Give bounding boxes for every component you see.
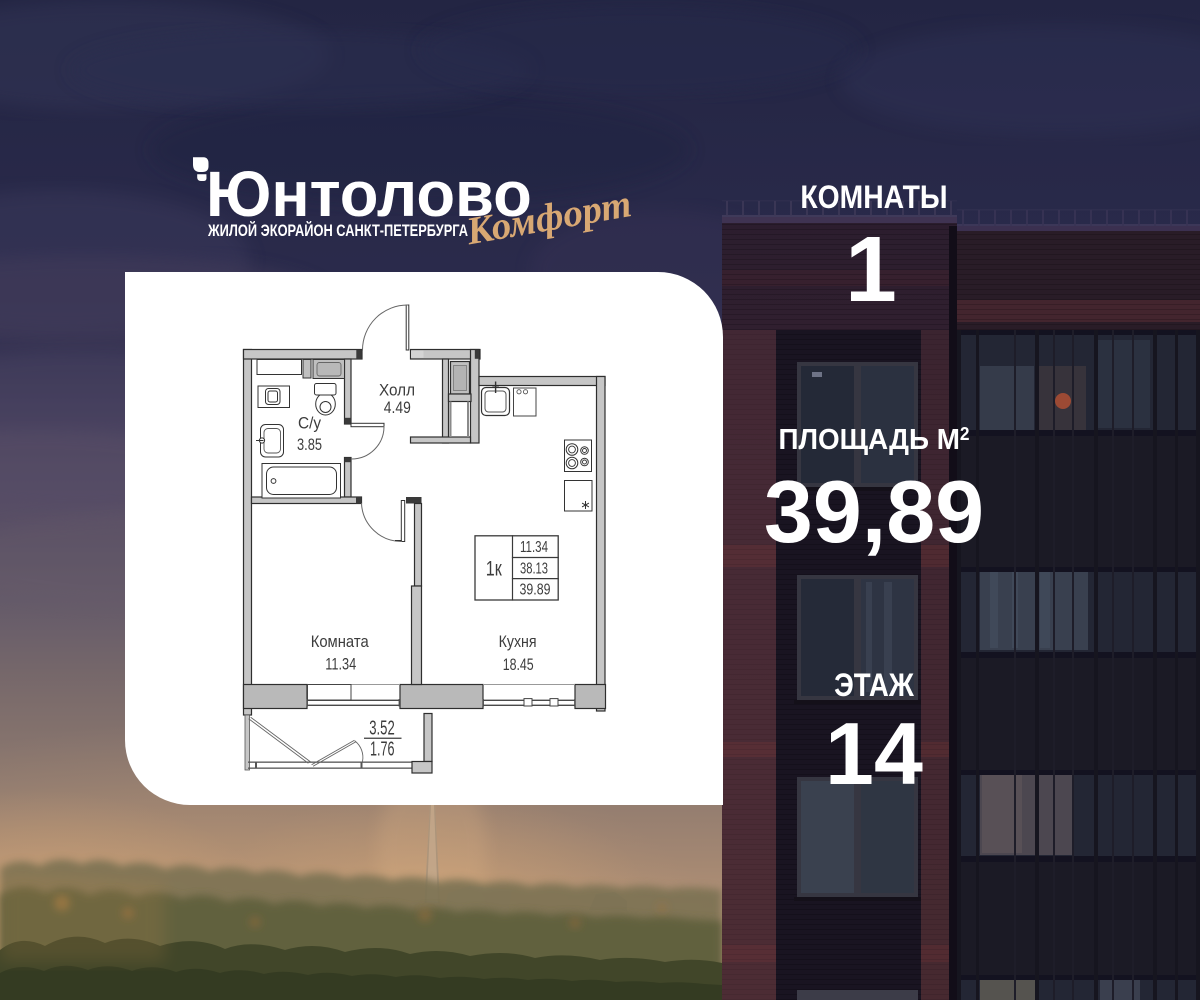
svg-text:3.52: 3.52 xyxy=(369,718,395,740)
svg-text:11.34: 11.34 xyxy=(520,539,548,556)
svg-text:18.45: 18.45 xyxy=(503,655,534,674)
svg-text:Комната: Комната xyxy=(311,632,370,651)
svg-text:3.85: 3.85 xyxy=(297,435,322,454)
svg-text:Холл: Холл xyxy=(379,380,415,399)
svg-text:38.13: 38.13 xyxy=(520,560,548,577)
svg-text:Кухня: Кухня xyxy=(499,632,537,651)
svg-text:С/у: С/у xyxy=(298,414,322,433)
svg-text:1.76: 1.76 xyxy=(370,739,395,761)
svg-text:39.89: 39.89 xyxy=(520,581,551,598)
svg-text:4.49: 4.49 xyxy=(384,398,411,417)
svg-text:11.34: 11.34 xyxy=(325,655,356,674)
svg-text:1к: 1к xyxy=(486,558,503,581)
